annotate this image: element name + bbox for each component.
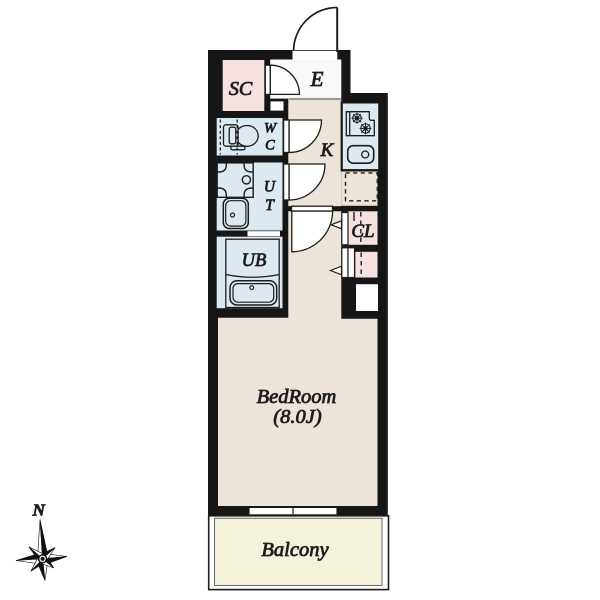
svg-text:E: E (310, 67, 324, 91)
svg-text:UB: UB (242, 251, 267, 271)
svg-text:U: U (264, 179, 277, 196)
svg-text:Balcony: Balcony (261, 539, 329, 561)
svg-text:C: C (265, 138, 275, 154)
svg-text:W: W (264, 120, 278, 136)
svg-text:(8.0J): (8.0J) (273, 406, 322, 428)
svg-text:BedRoom: BedRoom (257, 386, 337, 408)
svg-text:N: N (32, 501, 46, 520)
svg-text:K: K (320, 140, 335, 161)
svg-text:SC: SC (229, 78, 253, 100)
svg-text:CL: CL (351, 221, 374, 242)
svg-text:T: T (265, 197, 275, 214)
